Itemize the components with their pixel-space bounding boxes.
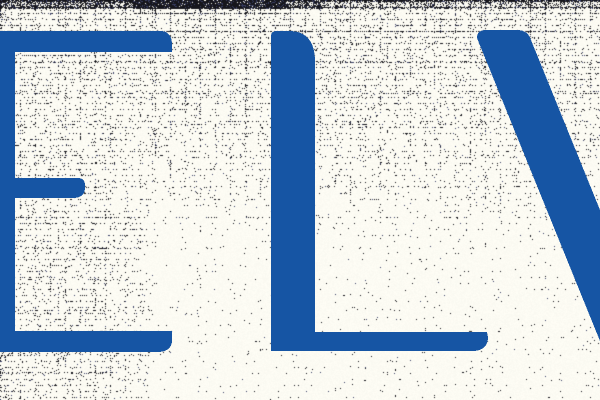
logo-letters [0, 0, 600, 400]
letter-e-shape [0, 31, 172, 352]
logo-crop-image: ELV [0, 0, 600, 400]
letter-l-shape [271, 31, 488, 351]
letter-v-left-stroke-shape [477, 30, 600, 341]
